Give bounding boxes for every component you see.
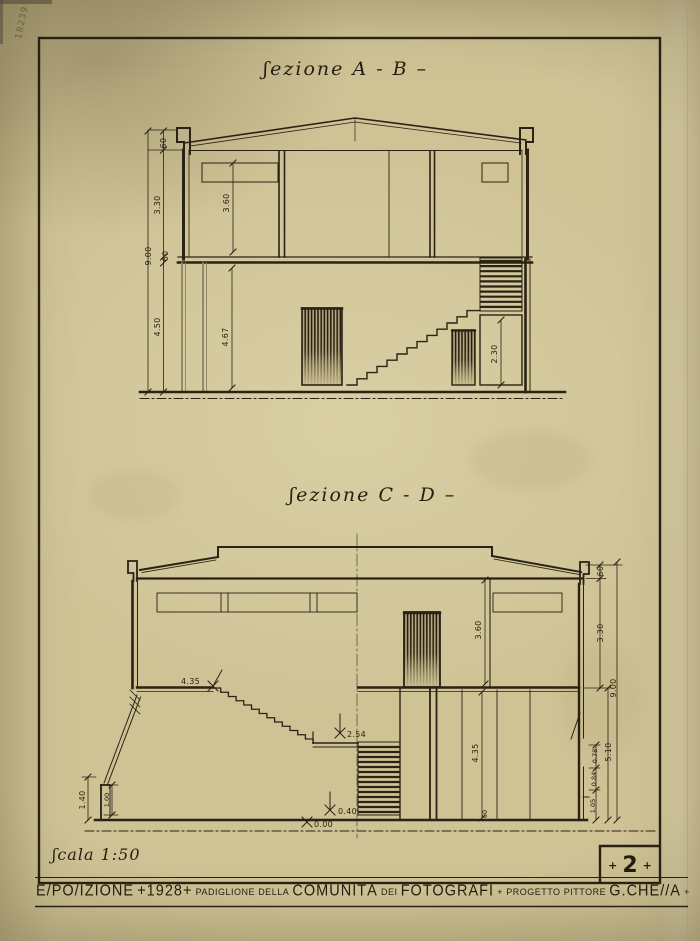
cd-dim-ground: 0.00	[314, 820, 333, 829]
ab-dim-understair: 2.30	[490, 344, 499, 363]
section-cd-drawing	[82, 534, 655, 838]
cd-dim-right-small-2: 0.84	[590, 772, 598, 786]
cd-dim-landing: 2.54	[347, 730, 366, 739]
cd-dim-stair-top: 4.35	[181, 677, 200, 686]
cd-roof	[140, 547, 581, 575]
ab-dim-upper-inner: 3.60	[222, 193, 231, 212]
page-number-plus: +	[643, 859, 652, 872]
linework-svg: 60 3.30 9.00 60 4.50 3.60 4.67 2.30	[0, 0, 700, 941]
banner-segment: DEI	[381, 887, 398, 897]
banner-segment: +	[497, 887, 503, 897]
cd-dim-left-inner: 1.00	[103, 793, 111, 807]
banner-segment: PROGETTO	[506, 887, 560, 897]
cd-dim-left-outer: 1.40	[78, 790, 87, 809]
cd-parapet-left	[128, 561, 137, 581]
cd-dim-right-small-3: 1.05	[589, 799, 597, 813]
ab-door-curtain	[302, 308, 342, 385]
banner-segment: +	[684, 887, 690, 897]
cd-dim-ticks	[85, 559, 620, 823]
cd-dim-connectors	[82, 565, 622, 815]
cd-lower-partitions	[430, 688, 530, 820]
ab-upper-walls	[178, 150, 532, 263]
cd-dim-right-upper: 3.30	[596, 623, 605, 642]
ab-understair-door	[452, 330, 475, 385]
cd-dim-right-total: 9.00	[609, 678, 618, 697]
banner-segment: PITTORE	[564, 887, 606, 897]
cd-window-bands	[157, 593, 562, 612]
page-number-value: 2	[622, 853, 637, 878]
drawing-sheet: 18239	[0, 0, 700, 941]
cd-door-curtain	[404, 612, 440, 687]
page-number: + 2 +	[601, 849, 659, 881]
section-ab-title: ʃezione A - B –	[263, 58, 428, 80]
cd-stair-front-view	[358, 742, 400, 815]
banner-segment: FOTOGRAFI	[401, 883, 494, 900]
banner-segment: E/PO/IZIONE	[36, 883, 134, 900]
ab-dim-lower-inner: 4.67	[221, 327, 230, 346]
cd-dim-base: 60	[481, 810, 489, 818]
ab-right-wall	[526, 259, 531, 392]
title-block-banner: E/PO/IZIONE +1928+ PADIGLIONE DELLA COMU…	[36, 883, 690, 907]
cd-right-wall	[571, 584, 589, 820]
cd-dim-right-parapet: 60	[596, 566, 605, 577]
ab-roof	[184, 118, 526, 146]
ab-dim-total: 9.00	[144, 246, 153, 265]
ab-dim-lower-left: 4.50	[153, 317, 162, 336]
cd-dim-labels: 4.35 2.54 0.40 0.00 3.60 4.35 60 60 3.30…	[78, 566, 618, 829]
scale-note: ʃcala 1:50	[52, 845, 141, 864]
cd-stair-section	[213, 688, 313, 743]
ab-dim-parapet: 60	[159, 138, 168, 149]
cd-floor-slab	[137, 688, 579, 692]
ab-dim-slab: 60	[161, 251, 170, 262]
ab-stair-front-view	[480, 258, 522, 311]
banner-segment: COMUNITÀ	[292, 883, 377, 900]
cd-dim-lower-inner: 4.35	[471, 743, 480, 762]
page-number-plus: +	[608, 859, 617, 872]
ab-window-bands	[202, 163, 508, 182]
ab-dim-upper-left: 3.30	[153, 195, 162, 214]
cd-dim-right-small-1: 0.78	[591, 749, 599, 763]
cd-dim-upper-inner: 3.60	[474, 620, 483, 639]
section-ab-drawing	[140, 118, 565, 399]
cd-dim-right-lower: 5.10	[604, 742, 613, 761]
ab-partitions	[279, 151, 435, 257]
section-cd-title: ʃezione C - D –	[289, 484, 456, 506]
banner-segment: G.CHE//A	[609, 883, 681, 900]
ab-ground-glazing	[182, 263, 207, 392]
cd-left-wall	[130, 581, 140, 714]
cd-dim-lines	[88, 562, 617, 820]
banner-segment: PADIGLIONE	[196, 887, 255, 897]
banner-segment: DELLA	[258, 887, 289, 897]
cd-dim-step: 0.40	[338, 807, 357, 816]
banner-segment: +1928+	[137, 883, 192, 900]
